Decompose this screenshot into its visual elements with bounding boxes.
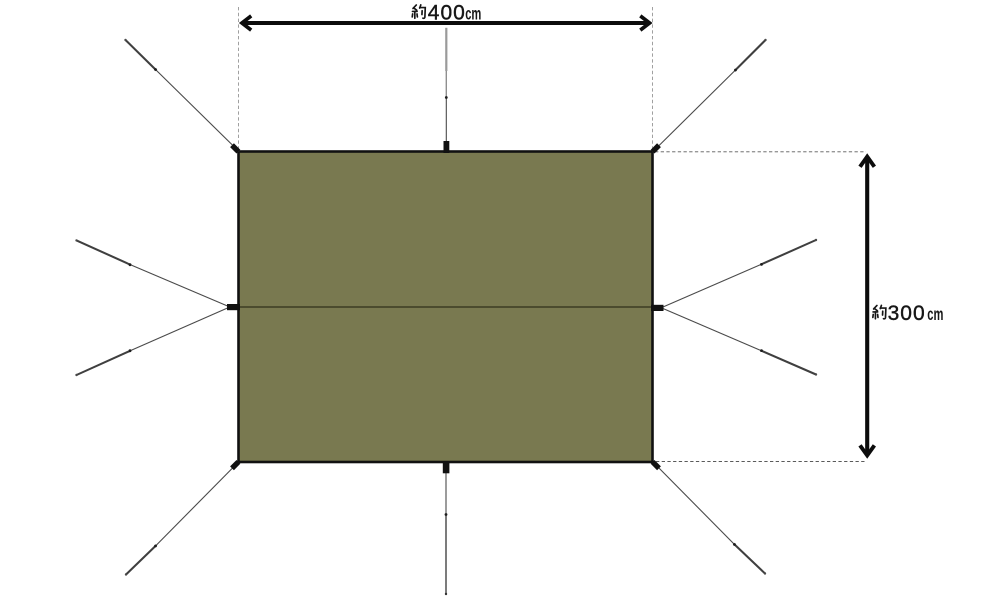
svg-text:cm: cm xyxy=(465,4,481,24)
svg-text:cm: cm xyxy=(927,304,943,324)
svg-text:400: 400 xyxy=(428,2,466,25)
svg-text:300: 300 xyxy=(888,302,926,325)
